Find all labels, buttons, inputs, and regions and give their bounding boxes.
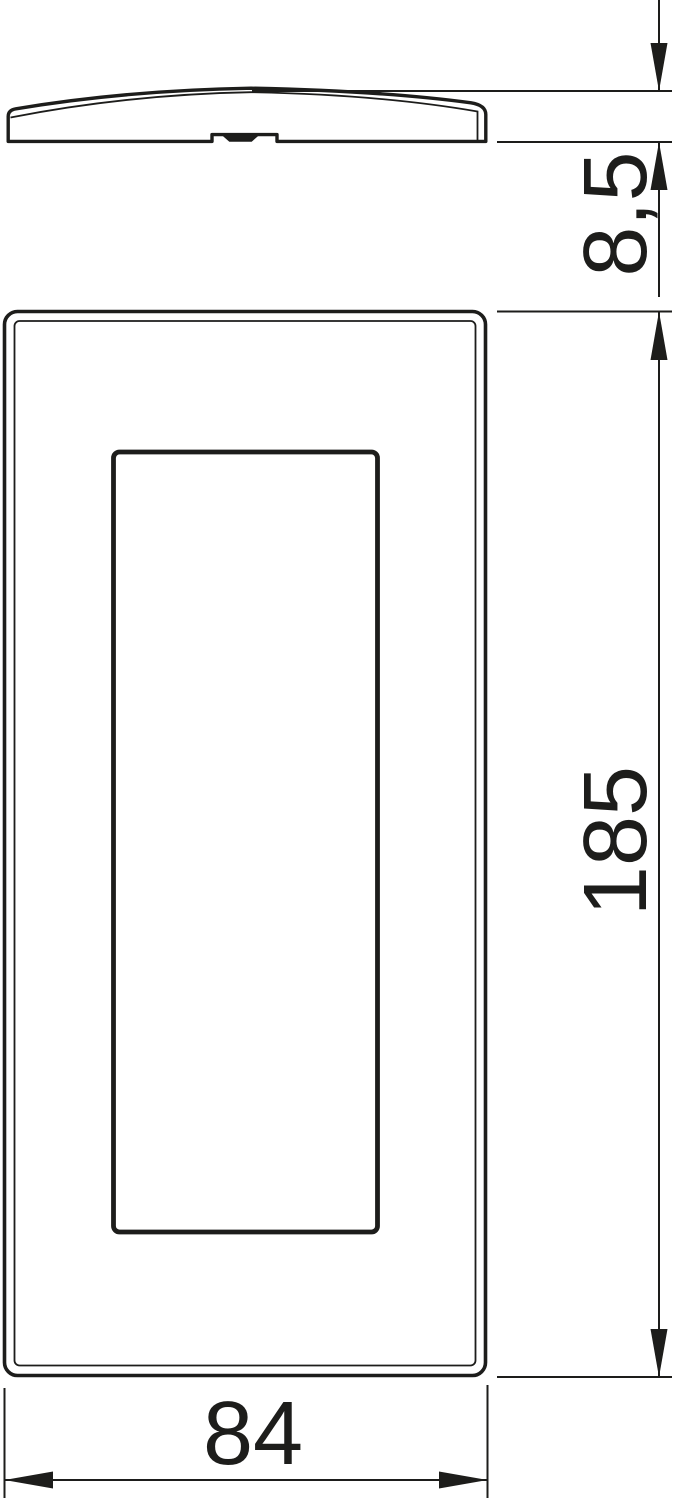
dimension-label-front-width: 84 — [203, 1384, 303, 1484]
technical-drawing-canvas: 8,5 185 84 — [0, 0, 677, 1500]
arrow-down-icon — [651, 43, 668, 91]
front-inner-edge — [15, 321, 476, 1366]
side-profile-latch-detail — [222, 135, 259, 142]
arrow-right-icon — [439, 1472, 488, 1489]
front-outer-frame — [5, 312, 486, 1376]
front-aperture-opening — [114, 452, 378, 1232]
side-profile-outline — [8, 88, 486, 141]
dimension-side-thickness: 8,5 — [252, 0, 672, 297]
dimension-front-width: 84 — [5, 1384, 488, 1498]
front-view — [5, 312, 486, 1376]
side-profile-view — [8, 88, 486, 141]
arrow-down-icon — [651, 1329, 668, 1377]
dimension-front-height: 185 — [497, 312, 672, 1378]
dimension-label-front-height: 185 — [566, 766, 666, 916]
arrow-up-icon — [651, 312, 668, 361]
technical-drawing-page: 8,5 185 84 — [0, 0, 677, 1500]
dimension-label-side-thickness: 8,5 — [566, 151, 666, 276]
arrow-left-icon — [5, 1472, 54, 1489]
